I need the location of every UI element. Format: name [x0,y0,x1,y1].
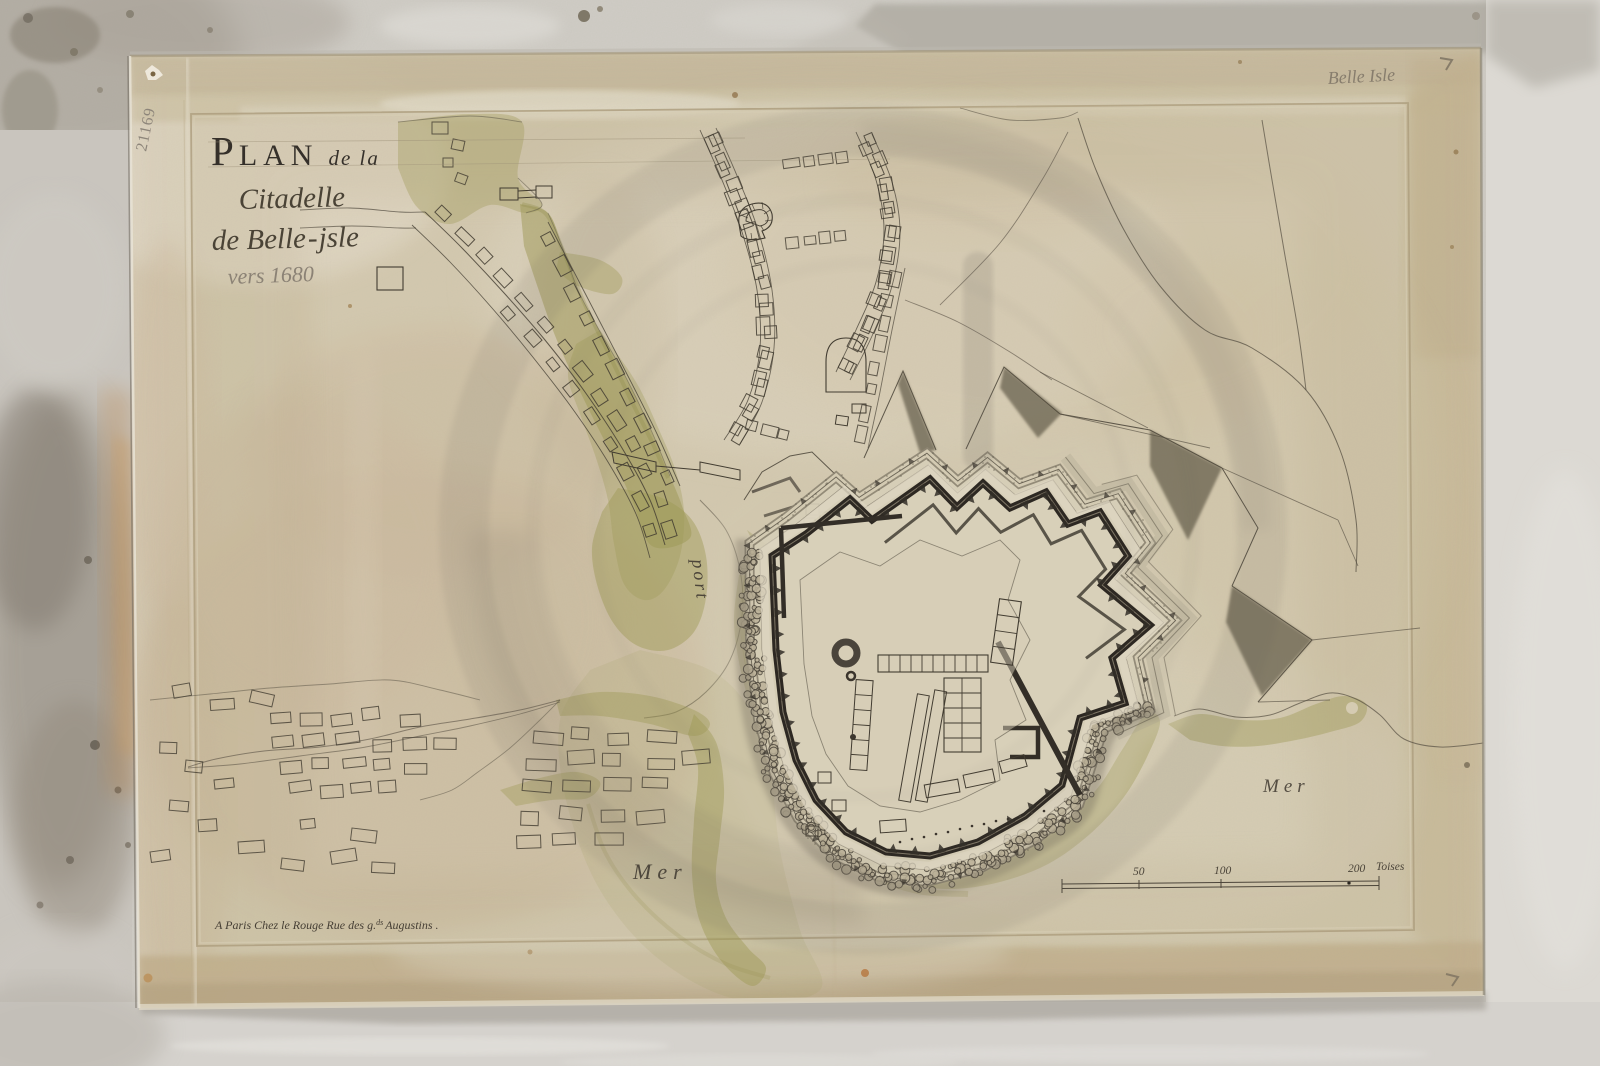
svg-text:200: 200 [1348,863,1366,875]
svg-text:100: 100 [1214,865,1232,877]
svg-text:vers 1680: vers 1680 [227,261,314,289]
svg-text:de Belle-jsle: de Belle-jsle [211,221,359,257]
svg-text:Mer: Mer [1262,776,1310,797]
svg-text:50: 50 [1133,866,1145,878]
svg-text:Belle Isle: Belle Isle [1327,64,1395,88]
svg-text:Toises: Toises [1376,861,1405,873]
svg-text:A Paris Chez le Rouge Rue des: A Paris Chez le Rouge Rue des g.dsAugust… [214,918,439,932]
svg-text:Citadelle: Citadelle [238,181,345,216]
